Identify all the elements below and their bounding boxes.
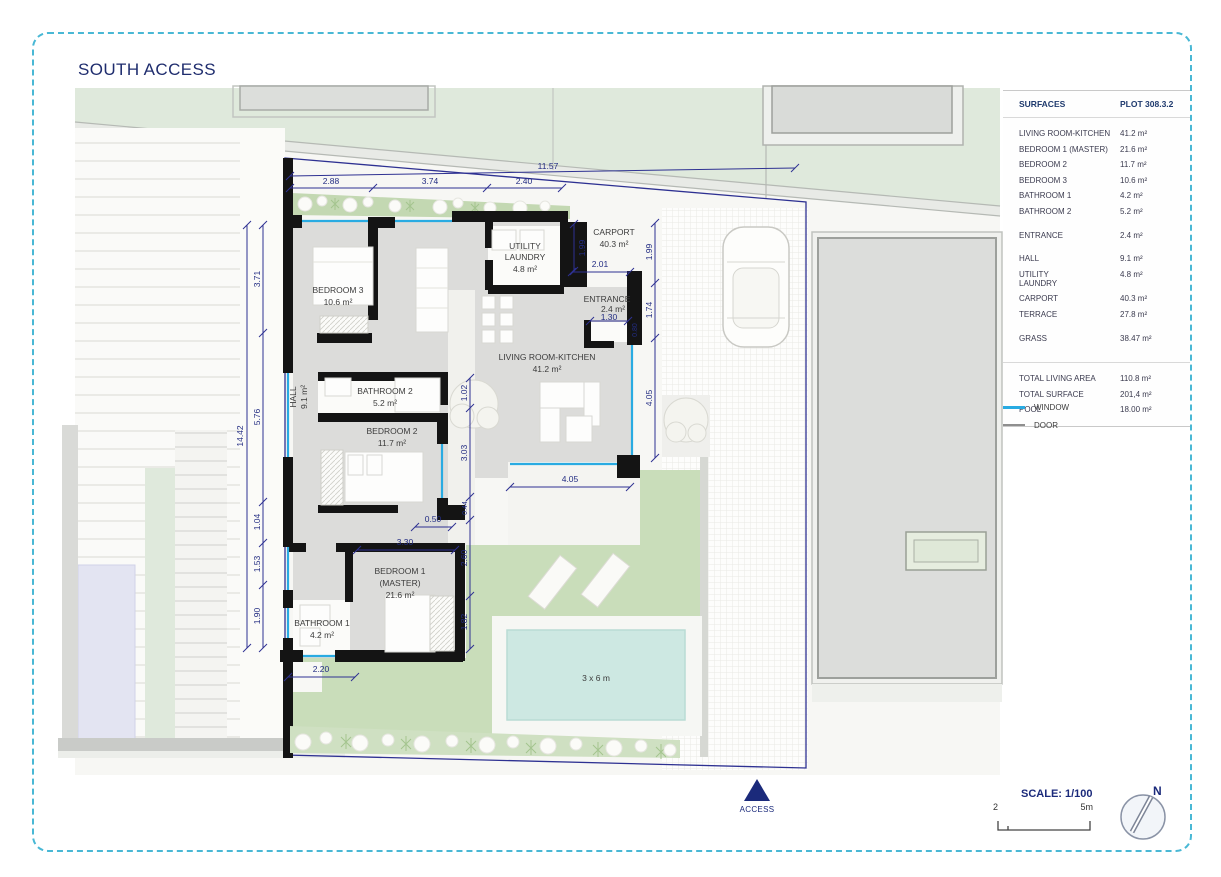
svg-text:LAUNDRY: LAUNDRY [505, 252, 546, 262]
svg-text:2.60: 2.60 [459, 549, 469, 566]
svg-text:4.05: 4.05 [644, 389, 654, 406]
svg-text:0.80: 0.80 [632, 323, 639, 337]
bathroom1-label: BATHROOM 1 [294, 618, 350, 628]
svg-text:11.7 m²: 11.7 m² [378, 438, 406, 448]
neighbor-building-north-east [763, 86, 963, 145]
svg-text:0.44: 0.44 [462, 501, 469, 515]
car-icon [723, 227, 789, 347]
scale-block: SCALE: 1/100 2 5m [985, 788, 1115, 812]
table-row: HALL9.1 m² [1003, 251, 1190, 267]
scale-bar [998, 821, 1090, 830]
svg-text:4.2 m²: 4.2 m² [310, 630, 334, 640]
table-row: BEDROOM 1 (MASTER)21.6 m² [1003, 142, 1190, 158]
scale-label: SCALE: 1/100 [1021, 788, 1115, 800]
svg-text:3.74: 3.74 [422, 176, 439, 186]
access-arrow-icon [744, 779, 770, 801]
svg-text:2.01: 2.01 [592, 259, 609, 269]
legend: WINDOW DOOR [1003, 398, 1069, 434]
table-row: BEDROOM 211.7 m² [1003, 157, 1190, 173]
svg-text:(MASTER): (MASTER) [379, 578, 420, 588]
svg-text:1.02: 1.02 [459, 384, 469, 401]
svg-text:3.30: 3.30 [397, 537, 414, 547]
door-line-icon [1003, 424, 1025, 426]
svg-text:11.57: 11.57 [538, 161, 559, 171]
svg-text:3.71: 3.71 [252, 270, 262, 287]
carport-label: CARPORT [593, 227, 634, 237]
svg-text:5.2 m²: 5.2 m² [373, 398, 397, 408]
svg-text:4.05: 4.05 [562, 474, 579, 484]
table-row: TERRACE27.8 m² [1003, 307, 1190, 323]
entrance-label: ENTRANCE [584, 294, 631, 304]
hall-label: HALL [288, 386, 298, 408]
svg-text:1.99: 1.99 [577, 239, 587, 256]
legend-window: WINDOW [1003, 398, 1069, 416]
compass-icon: N [1121, 784, 1165, 839]
access-label: ACCESS [727, 805, 787, 814]
living-room-label: LIVING ROOM-KITCHEN [499, 352, 596, 362]
neighbor-building-east [812, 232, 1002, 702]
svg-text:1.99: 1.99 [644, 243, 654, 260]
svg-text:1.82: 1.82 [459, 613, 469, 630]
table-row: CARPORT40.3 m² [1003, 291, 1190, 307]
svg-text:9.1 m²: 9.1 m² [299, 385, 309, 409]
pool: 3 x 6 m [492, 616, 702, 736]
table-row: UTILITY LAUNDRY4.8 m² [1003, 267, 1190, 292]
compass-north-label: N [1153, 784, 1162, 798]
bedroom1-label: BEDROOM 1 [374, 566, 425, 576]
svg-text:40.3 m²: 40.3 m² [600, 239, 629, 249]
surfaces-table: SURFACES PLOT 308.3.2 LIVING ROOM-KITCHE… [1003, 90, 1190, 427]
table-row: BATHROOM 25.2 m² [1003, 204, 1190, 220]
neighbor-pool [78, 565, 135, 740]
svg-text:1.74: 1.74 [644, 301, 654, 318]
svg-text:21.6 m²: 21.6 m² [386, 590, 415, 600]
scale-start: 2 [993, 802, 998, 812]
table-row: GRASS38.47 m² [1003, 330, 1190, 346]
window-line-icon [1003, 406, 1025, 409]
pool-size-label: 3 x 6 m [582, 673, 610, 683]
svg-text:1.30: 1.30 [601, 312, 618, 322]
plot-number: PLOT 308.3.2 [1120, 99, 1182, 109]
svg-text:10.6 m²: 10.6 m² [324, 297, 353, 307]
bathroom2-label: BATHROOM 2 [357, 386, 413, 396]
table-row: ENTRANCE2.4 m² [1003, 227, 1190, 243]
surfaces-table-header: SURFACES PLOT 308.3.2 [1003, 97, 1190, 118]
svg-text:5.76: 5.76 [252, 408, 262, 425]
svg-text:2.88: 2.88 [323, 176, 340, 186]
utility-label: UTILITY [509, 241, 541, 251]
svg-text:1.90: 1.90 [252, 607, 262, 624]
plan-sheet: SOUTH ACCESS [0, 0, 1221, 877]
svg-text:14.42: 14.42 [235, 425, 245, 447]
svg-text:0.50: 0.50 [425, 514, 442, 524]
bedroom3-label: BEDROOM 3 [312, 285, 363, 295]
scale-end: 5m [1080, 802, 1093, 812]
svg-text:41.2 m²: 41.2 m² [533, 364, 562, 374]
table-row: BEDROOM 310.6 m² [1003, 173, 1190, 189]
table-row-total: TOTAL LIVING AREA110.8 m² [1003, 371, 1190, 387]
legend-door: DOOR [1003, 416, 1069, 434]
svg-text:2.40: 2.40 [516, 176, 533, 186]
bedroom2-label: BEDROOM 2 [366, 426, 417, 436]
svg-text:2.20: 2.20 [313, 664, 330, 674]
table-row: BATHROOM 14.2 m² [1003, 188, 1190, 204]
table-row: LIVING ROOM-KITCHEN41.2 m² [1003, 126, 1190, 142]
svg-text:4.8 m²: 4.8 m² [513, 264, 537, 274]
svg-text:1.53: 1.53 [252, 555, 262, 572]
surfaces-header-label: SURFACES [1019, 99, 1065, 109]
svg-text:3.03: 3.03 [459, 444, 469, 461]
svg-text:1.04: 1.04 [252, 513, 262, 530]
